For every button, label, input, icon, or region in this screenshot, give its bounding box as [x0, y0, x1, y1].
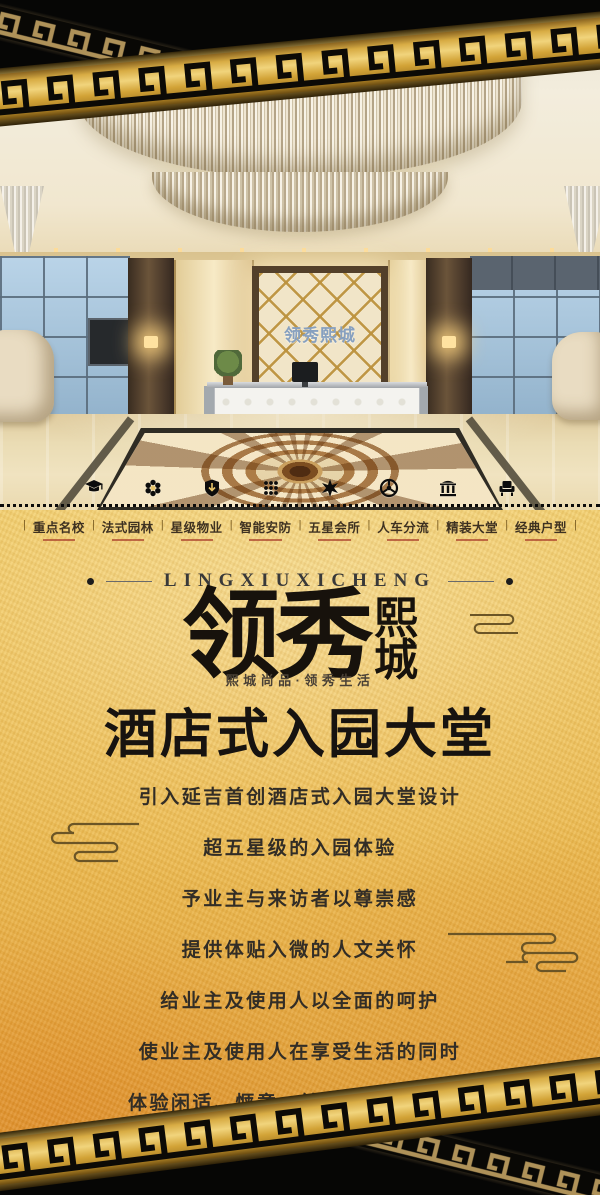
building-icon	[438, 478, 458, 498]
feature-separator: |	[367, 517, 370, 531]
feature-separator: |	[574, 517, 577, 531]
feature-item: 经典户型	[515, 517, 567, 541]
feature-separator: |	[230, 517, 233, 531]
graduation-cap-icon	[84, 478, 104, 498]
star-flower-icon	[320, 478, 340, 498]
feature-separator: |	[299, 517, 302, 531]
feature-item: 五星会所	[308, 517, 360, 541]
lounge-sofa-right	[552, 332, 600, 420]
feature-item: 星级物业	[171, 517, 223, 541]
body-line: 引入延吉首创酒店式入园大堂设计	[139, 782, 462, 809]
body-line: 予业主与来访者以尊崇感	[182, 884, 419, 911]
feature-separator: |	[161, 517, 164, 531]
logo-char-top: 熙	[374, 598, 418, 640]
feature-separator: |	[436, 517, 439, 531]
feature-label: 智能安防	[240, 521, 292, 535]
dotted-divider	[0, 504, 600, 507]
keypad-icon	[261, 478, 281, 498]
lounge-sofa-left	[0, 330, 54, 422]
steering-wheel-icon	[379, 478, 399, 498]
body-line: 超五星级的入园体验	[203, 833, 397, 860]
lattice-feature-wall: 领秀熙城	[252, 266, 388, 400]
floor-medallion	[96, 428, 504, 512]
real-estate-poster: 领秀熙城	[0, 0, 600, 1195]
body-line: 提供体贴入微的人文关怀	[182, 935, 419, 962]
feature-label: 人车分流	[377, 521, 429, 535]
feature-label-strip: | 重点名校 | 法式园林 | 星级物业 | 智能安防 | 五星会所 | 人车分…	[0, 517, 600, 541]
feature-item: 重点名校	[33, 517, 85, 541]
feature-label: 经典户型	[515, 521, 567, 535]
lobby-sign-text: 领秀熙城	[284, 321, 356, 346]
body-line: 使业主及使用人在享受生活的同时	[139, 1037, 462, 1064]
potted-plant	[214, 350, 242, 384]
feature-item: 精装大堂	[446, 517, 498, 541]
feature-separator: |	[23, 517, 26, 531]
cloud-ornament-small	[450, 602, 530, 642]
rule-ornament	[106, 581, 152, 582]
feature-label: 精装大堂	[446, 521, 498, 535]
dot-ornament	[506, 578, 513, 585]
rule-ornament	[448, 581, 494, 582]
cloud-ornament-right	[444, 922, 596, 984]
wall-sconce-right	[442, 336, 456, 348]
brand-tagline: 熙城尚品·领秀生活	[0, 670, 600, 689]
feature-separator: |	[92, 517, 95, 531]
shield-icon	[202, 478, 222, 498]
body-line: 给业主及使用人以全面的呵护	[160, 986, 440, 1013]
dot-ornament	[87, 578, 94, 585]
feature-separator: |	[505, 517, 508, 531]
feature-item: 法式园林	[102, 517, 154, 541]
flower-icon	[143, 478, 163, 498]
feature-label: 法式园林	[102, 521, 154, 535]
feature-item: 智能安防	[240, 517, 292, 541]
feature-icons-row	[0, 478, 600, 498]
armchair-icon	[497, 478, 517, 498]
feature-label: 星级物业	[171, 521, 223, 535]
logo-main-characters: 领秀	[182, 590, 370, 680]
feature-label: 重点名校	[33, 521, 85, 535]
desk-monitor	[292, 362, 318, 382]
feature-label: 五星会所	[308, 521, 360, 535]
poster-headline: 酒店式入园大堂	[0, 692, 600, 768]
feature-item: 人车分流	[377, 517, 429, 541]
cloud-ornament-left	[44, 814, 144, 876]
wall-sconce-left	[144, 336, 158, 348]
